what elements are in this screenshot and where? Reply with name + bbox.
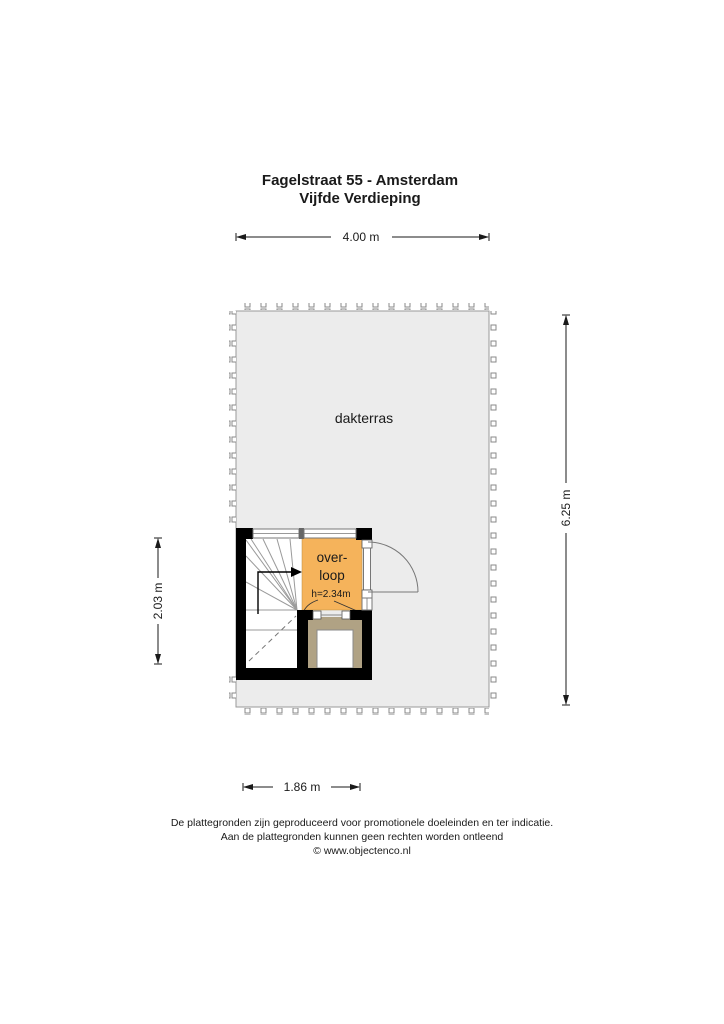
page-subtitle: Vijfde Verdieping (299, 190, 420, 207)
landing-label-line2: loop (319, 568, 345, 583)
terrace-label: dakterras (335, 410, 393, 426)
landing-label-line1: over- (317, 550, 348, 565)
dim-right-arrow-top (563, 315, 569, 325)
dim-right-arrow-bottom (563, 695, 569, 705)
floorplan-page: Fagelstraat 55 - Amsterdam Vijfde Verdie… (0, 0, 724, 1024)
dimension-right-label: 6.25 m (559, 490, 573, 527)
door-frame-bottom (362, 590, 372, 598)
top-windows (253, 528, 356, 539)
dim-bottom-arrow-right (350, 784, 360, 790)
dimension-top-label: 4.00 m (343, 230, 380, 244)
floor-plan-svg: Fagelstraat 55 - Amsterdam Vijfde Verdie… (0, 0, 724, 1024)
footer-line1: De plattegronden zijn geproduceerd voor … (171, 817, 553, 829)
footer-copyright: © www.objectenco.nl (313, 845, 411, 857)
dim-top-arrow-left (236, 234, 246, 240)
dim-left-arrow-bottom (155, 654, 161, 664)
railing-left-lower (229, 673, 236, 707)
railing-bottom (236, 708, 489, 715)
door-leaf-closed (364, 548, 371, 590)
dimension-left-label: 2.03 m (151, 583, 165, 620)
dimension-bottom-label: 1.86 m (284, 780, 321, 794)
east-wall-elements (362, 540, 372, 610)
shaft-frame-left (313, 611, 321, 619)
dim-left-arrow-top (155, 538, 161, 548)
landing-height-note: h=2.34m (311, 589, 350, 600)
railing-right (490, 311, 497, 707)
railing-left-upper (229, 311, 236, 528)
skylight (317, 630, 353, 668)
door-frame-top (362, 540, 372, 548)
dim-bottom-arrow-left (243, 784, 253, 790)
dim-top-arrow-right (479, 234, 489, 240)
page-title: Fagelstraat 55 - Amsterdam (262, 172, 458, 189)
railing-top (236, 303, 489, 310)
footer-line2: Aan de plattegronden kunnen geen rechten… (221, 831, 504, 843)
shaft-frame-right (342, 611, 350, 619)
